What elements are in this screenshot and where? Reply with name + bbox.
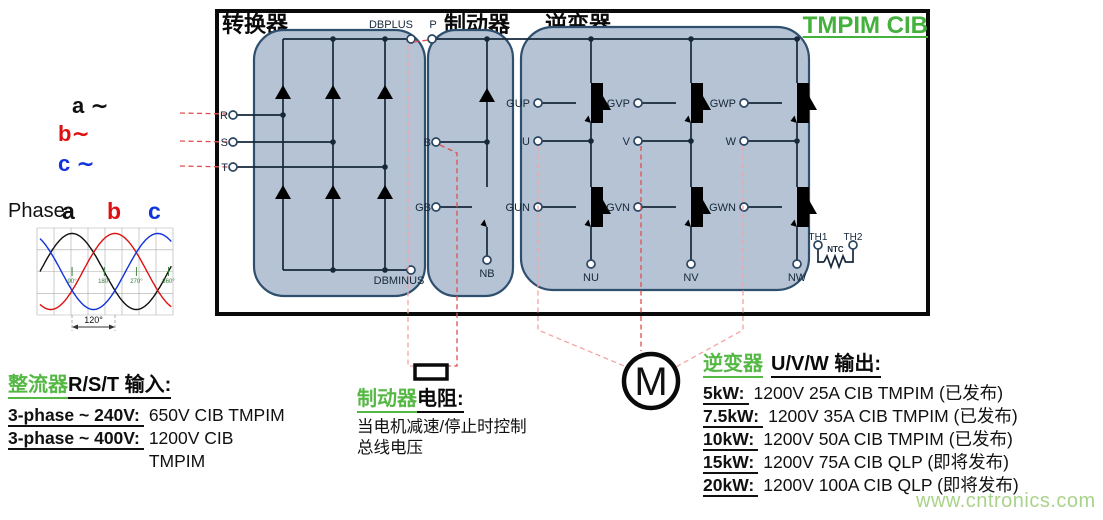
brake-title-green: 制动器 <box>357 388 417 413</box>
power-value: 1200V 25A CIB TMPIM (已发布) <box>754 383 1004 403</box>
nb-label: NB <box>479 268 494 280</box>
terminal-gvp <box>634 99 642 107</box>
gup-label: GUP <box>506 98 530 110</box>
th2-label: TH2 <box>844 232 863 243</box>
power-label: 15kW: <box>703 452 758 474</box>
gvp-label: GVP <box>607 98 630 110</box>
inverter-row-5kw: 5kW:1200V 25A CIB TMPIM (已发布) <box>703 382 1101 405</box>
th1-label: TH1 <box>809 232 828 243</box>
inverter-title-green: 逆变器 <box>703 353 763 378</box>
terminal-nw <box>793 260 801 268</box>
rectifier-row-400v: 3-phase ~ 400V:1200V CIB TMPIM <box>8 427 338 473</box>
dbminus-label: DBMINUS <box>374 275 425 287</box>
s-label: S <box>221 137 228 149</box>
inverter-title-black: U/V/W 输出: <box>771 353 881 378</box>
tick-360: 360° <box>162 279 175 285</box>
p-label: P <box>429 19 436 31</box>
power-value: 1200V 75A CIB QLP (即将发布) <box>763 452 1009 472</box>
motor-symbol: M <box>624 354 678 408</box>
b-label: B <box>424 137 431 149</box>
brake-annotation: 制动器电阻: 当电机减速/停止时控制 总线电压 <box>357 382 567 459</box>
terminal-gb <box>432 203 440 211</box>
rectifier-annotation: 整流器R/S/T 输入: 3-phase ~ 240V:650V CIB TMP… <box>8 368 338 473</box>
watermark: www.cntronics.com <box>916 490 1096 513</box>
dbplus-label: DBPLUS <box>369 19 413 31</box>
power-label: 20kW: <box>703 475 758 497</box>
terminal-nb <box>483 256 491 264</box>
phase-spacing-label: 120° <box>84 315 103 325</box>
circuit-diagram-canvas: 转换器 制动器 逆变器 TMPIM CIB a ∼ b∼ c ∼ Phase- … <box>0 0 1103 520</box>
terminal-p <box>428 35 436 43</box>
r-label: R <box>220 110 228 122</box>
inverter-row-10kw: 10kW:1200V 50A CIB TMPIM (已发布) <box>703 428 1101 451</box>
converter-module-box <box>254 30 425 296</box>
rectifier-title-black: R/S/T 输入: <box>68 374 171 399</box>
terminal-s <box>229 138 237 146</box>
motor-label: M <box>634 360 667 404</box>
inverter-module-box <box>521 27 809 290</box>
nw-label: NW <box>788 272 807 284</box>
terminal-u <box>534 137 542 145</box>
rectifier-row-label: 3-phase ~ 400V: <box>8 428 144 450</box>
rectifier-row-value: 1200V CIB TMPIM <box>149 427 234 473</box>
terminal-dbplus <box>407 35 415 43</box>
inverter-row-15kw: 15kW:1200V 75A CIB QLP (即将发布) <box>703 451 1101 474</box>
terminal-w <box>740 137 748 145</box>
terminal-nv <box>687 260 695 268</box>
ntc-label: NTC <box>827 245 844 254</box>
inverter-row-7-5kw: 7.5kW:1200V 35A CIB TMPIM (已发布) <box>703 405 1101 428</box>
terminal-b <box>432 138 440 146</box>
terminal-t <box>229 163 237 171</box>
inverter-annotation: 逆变器U/V/W 输出: 5kW:1200V 25A CIB TMPIM (已发… <box>703 347 1101 497</box>
gun-label: GUN <box>506 202 531 214</box>
terminal-v <box>634 137 642 145</box>
rectifier-title-green: 整流器 <box>8 374 68 399</box>
brake-title-black: 电阻: <box>417 388 464 413</box>
nu-label: NU <box>583 272 599 284</box>
gwn-label: GWN <box>709 202 736 214</box>
nv-label: NV <box>683 272 699 284</box>
gvn-label: GVN <box>606 202 630 214</box>
power-value: 1200V 35A CIB TMPIM (已发布) <box>768 406 1018 426</box>
gwp-label: GWP <box>710 98 736 110</box>
terminal-r <box>229 111 237 119</box>
terminal-gwp <box>740 99 748 107</box>
tick-180: 180° <box>98 279 111 285</box>
rectifier-row-label: 3-phase ~ 240V: <box>8 405 144 427</box>
power-label: 5kW: <box>703 383 749 405</box>
gb-label: GB <box>415 202 431 214</box>
power-value: 1200V 50A CIB TMPIM (已发布) <box>763 429 1013 449</box>
brake-annotation-title: 制动器电阻: <box>357 382 567 411</box>
tick-270: 270° <box>130 279 143 285</box>
brake-resistor-icon <box>415 365 447 379</box>
terminal-nu <box>587 260 595 268</box>
power-label: 7.5kW: <box>703 406 763 428</box>
inverter-annotation-title: 逆变器U/V/W 输出: <box>703 347 1101 376</box>
tick-90: 90° <box>68 279 78 285</box>
t-label: T <box>221 162 228 174</box>
v-label: V <box>623 136 631 148</box>
w-label: W <box>726 136 737 148</box>
rectifier-row-240v: 3-phase ~ 240V:650V CIB TMPIM <box>8 404 338 427</box>
terminal-gwn <box>740 203 748 211</box>
terminal-gup <box>534 99 542 107</box>
rectifier-annotation-title: 整流器R/S/T 输入: <box>8 368 338 397</box>
brake-module-box <box>428 30 513 296</box>
rectifier-row-value: 650V CIB TMPIM <box>149 405 285 425</box>
phase-waveform-plot: 90° 180° 270° 360° 120° <box>37 228 175 331</box>
brake-annotation-body: 当电机减速/停止时控制 总线电压 <box>357 417 567 459</box>
power-label: 10kW: <box>703 429 758 451</box>
u-label: U <box>522 136 530 148</box>
